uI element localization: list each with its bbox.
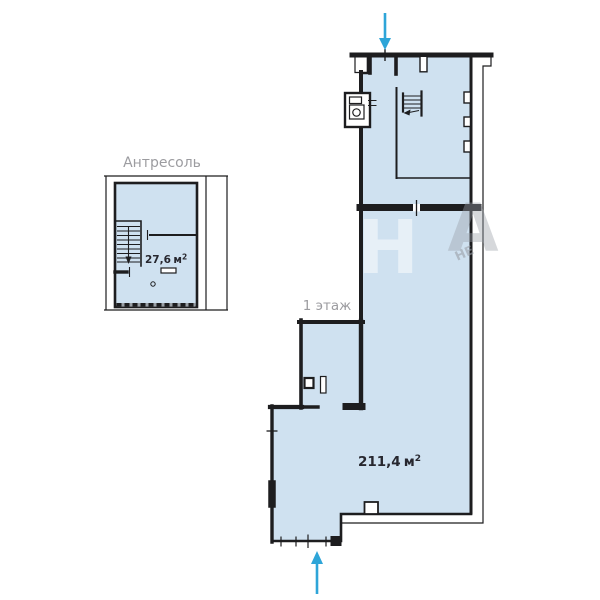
mezzanine-area-label: 27,6м2 bbox=[145, 253, 187, 267]
right-wall-pilaster-1 bbox=[464, 92, 471, 103]
arrow-down-icon bbox=[379, 38, 391, 50]
mezzanine-plan: 27,6м2 Антресоль bbox=[104, 155, 228, 310]
bottom-wall-pier bbox=[365, 502, 379, 514]
sink-bowl-icon bbox=[353, 109, 360, 116]
watermark-letter-white: Н bbox=[357, 205, 419, 291]
arrow-up-icon bbox=[311, 551, 323, 564]
entrance-arrow-top bbox=[379, 13, 391, 50]
first-floor-plan: 1 этаж 211,4м2 bbox=[267, 13, 492, 594]
right-wall-pilaster-3 bbox=[464, 141, 471, 152]
appendix-door-leaf bbox=[321, 377, 327, 394]
top-wall-notch bbox=[420, 56, 427, 72]
first-floor-label: 1 этаж bbox=[303, 298, 352, 314]
cistern-icon bbox=[350, 97, 362, 104]
right-wall-pilaster-2 bbox=[464, 117, 471, 127]
mezzanine-title: Антресоль bbox=[123, 155, 201, 171]
floor-plan-drawing: 27,6м2 Антресоль bbox=[0, 0, 600, 600]
entrance-arrow-bottom bbox=[311, 551, 323, 594]
appendix-column bbox=[305, 378, 314, 388]
bottom-corner-block bbox=[331, 536, 342, 546]
mezzanine-opening-bar bbox=[161, 268, 176, 273]
first-floor-area-label: 211,4м2 bbox=[358, 454, 421, 470]
